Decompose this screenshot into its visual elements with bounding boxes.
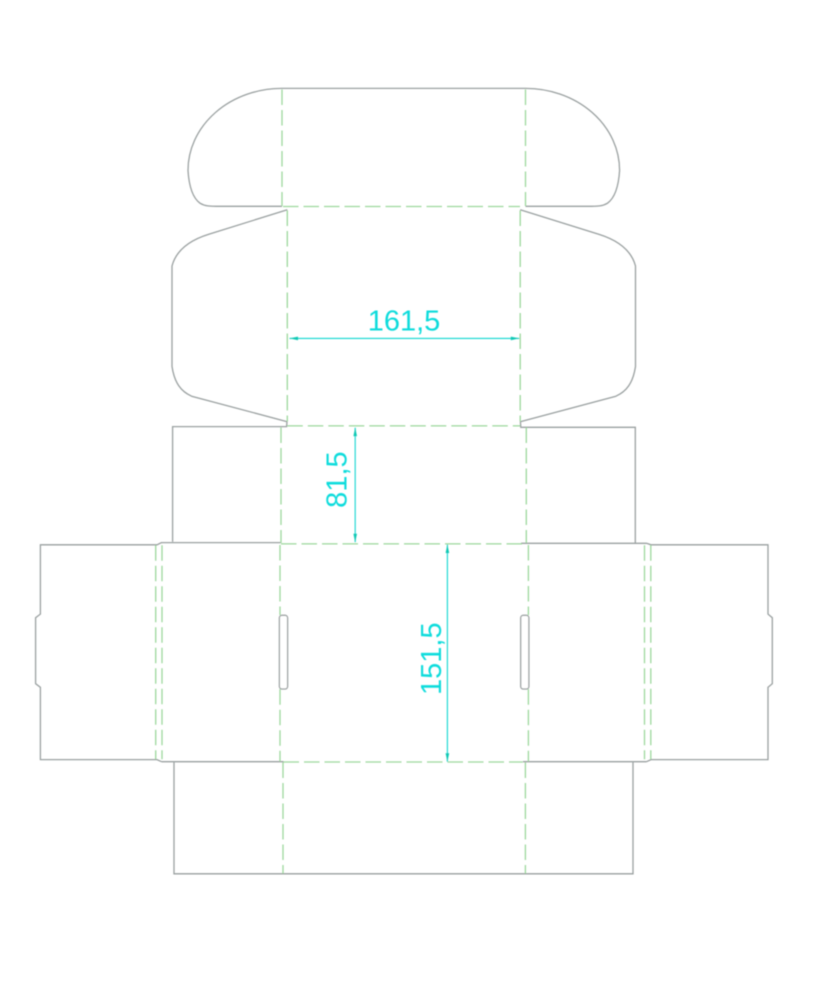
svg-text:151,5: 151,5	[416, 622, 448, 695]
svg-text:81,5: 81,5	[321, 451, 353, 507]
svg-text:161,5: 161,5	[368, 306, 441, 338]
